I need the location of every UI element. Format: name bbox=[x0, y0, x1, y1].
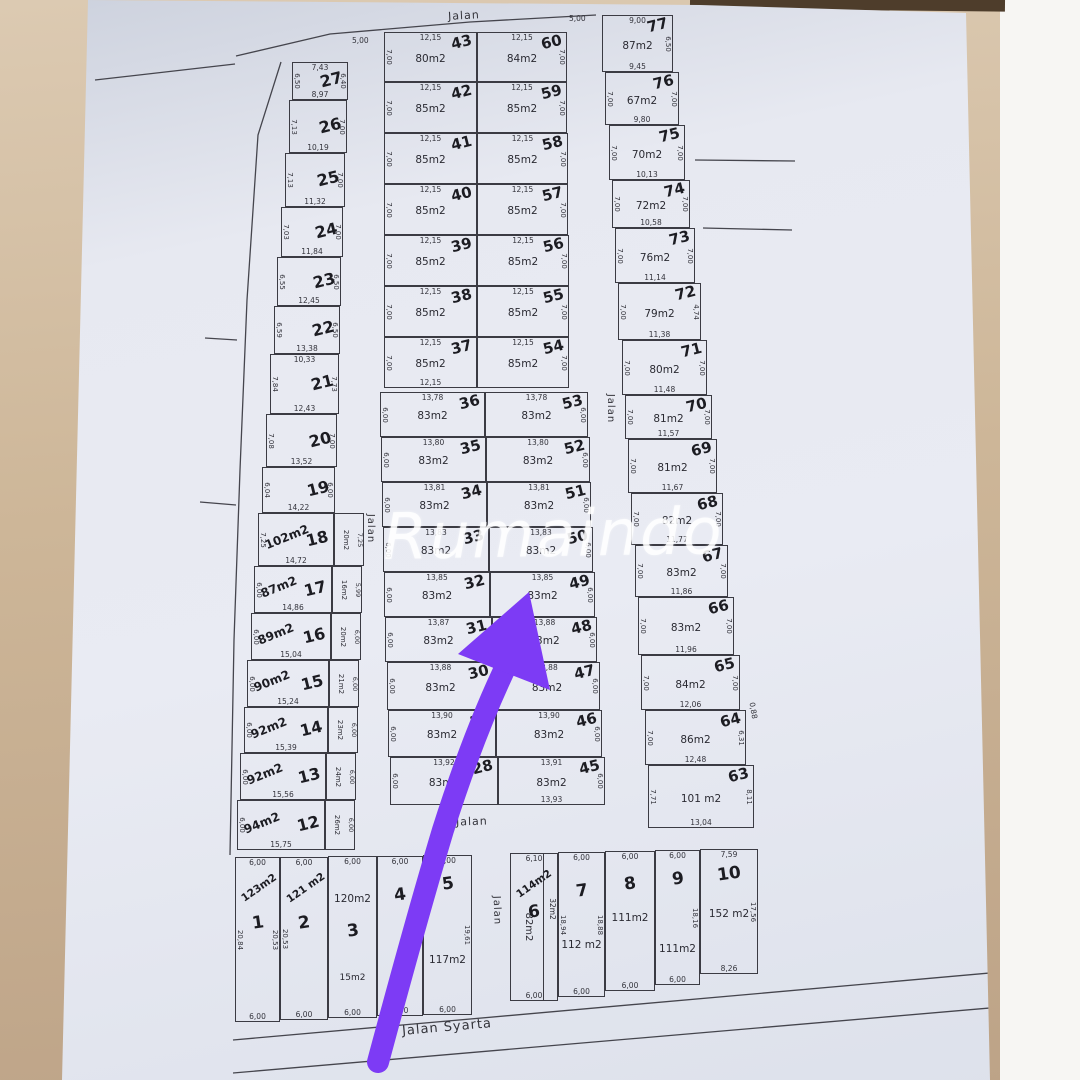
plot-area-handwritten: 92m2 bbox=[249, 714, 289, 741]
plot-area-handwritten: 89m2 bbox=[256, 621, 296, 648]
dim-bottom: 8,26 bbox=[721, 964, 738, 973]
plot-area: 81m2 bbox=[657, 462, 687, 474]
dim-left: 20,84 bbox=[236, 929, 244, 949]
watermark: Rumaindo bbox=[382, 495, 724, 575]
plot-73: 11,147,007,0076m273 bbox=[615, 228, 695, 283]
plot-area: 86m2 bbox=[680, 734, 710, 746]
dim-bottom: 13,52 bbox=[291, 457, 312, 466]
plot-number: 66 bbox=[706, 596, 731, 619]
plot-58: 12,157,0085m258 bbox=[477, 133, 568, 184]
plot-area: 80m2 bbox=[415, 53, 445, 65]
plot-39: 12,157,0085m239 bbox=[384, 235, 477, 286]
plot-22: 13,386,596,5022 bbox=[274, 306, 340, 354]
plot-area: 85m2 bbox=[415, 256, 445, 268]
plot-37: 12,1512,157,0085m237 bbox=[384, 337, 477, 388]
plot-36: 13,786,0083m236 bbox=[380, 392, 485, 437]
photo-of-site-plan: 7,438,976,506,402710,197,137,002611,327,… bbox=[0, 0, 1080, 1080]
plot-18: 14,727,25102m218 bbox=[258, 513, 334, 566]
strip-area: 16m2 bbox=[340, 579, 348, 599]
dim-top: 13,88 bbox=[534, 618, 555, 627]
plot-number: 65 bbox=[712, 654, 737, 677]
dim-bottom: 9,45 bbox=[629, 62, 646, 71]
plot-70: 11,577,007,0081m270 bbox=[625, 395, 712, 439]
plot-area: 85m2 bbox=[507, 103, 537, 115]
plot-77: 9,009,456,5087m277 bbox=[602, 15, 673, 72]
strip-area: 21m2 bbox=[337, 673, 345, 693]
plot-number: 6 bbox=[527, 901, 542, 922]
road-label-2: Jalan bbox=[365, 514, 376, 543]
dim-left: 7,00 bbox=[610, 145, 618, 161]
dim-left: 6,00 bbox=[391, 773, 399, 789]
dim-top: 12,15 bbox=[512, 236, 533, 245]
plot-area: 85m2 bbox=[508, 307, 538, 319]
strip-area: 23m2 bbox=[336, 720, 344, 740]
plot-13: 15,566,0092m213 bbox=[240, 753, 326, 800]
road-label-5: Jalan bbox=[491, 896, 503, 926]
plot-2: 6,006,0020,53121 m22 bbox=[280, 857, 328, 1020]
plot-5: 6,006,0019,61117m25 bbox=[423, 855, 472, 1015]
plot-number: 1 bbox=[250, 912, 265, 933]
dim-left: 7,00 bbox=[606, 91, 614, 107]
dim-bottom: 10,58 bbox=[640, 218, 661, 227]
plot-number: 39 bbox=[449, 234, 474, 257]
plot-number: 63 bbox=[726, 764, 751, 787]
plot-18-strip: 20m27,25 bbox=[334, 513, 364, 566]
plot-number: 75 bbox=[657, 124, 682, 147]
dim-bottom: 10,13 bbox=[636, 170, 657, 179]
dim-top: 12,15 bbox=[420, 83, 441, 92]
plot-area-handwritten: 121 m2 bbox=[285, 871, 328, 906]
dim-top: 12,15 bbox=[511, 83, 532, 92]
dim-right: 17,56 bbox=[749, 901, 757, 921]
plot-number: 28 bbox=[470, 756, 495, 779]
plot-47: 13,886,0083m247 bbox=[494, 662, 600, 710]
strip-area: 20m2 bbox=[339, 626, 347, 646]
dim-top: 9,00 bbox=[629, 16, 646, 25]
plot-area: 85m2 bbox=[415, 358, 445, 370]
plot-59: 12,157,0085m259 bbox=[477, 82, 567, 133]
plot-area: 84m2 bbox=[507, 53, 537, 65]
dim-bottom: 12,45 bbox=[298, 296, 319, 305]
dim-top: 12,15 bbox=[420, 338, 441, 347]
dim-top: 6,00 bbox=[249, 858, 266, 867]
plot-subarea: 15m2 bbox=[340, 973, 366, 983]
dim-top: 10,33 bbox=[294, 355, 315, 364]
plot-63: 13,047,718,11101 m263 bbox=[648, 765, 754, 828]
plot-number: 13 bbox=[296, 763, 322, 787]
plot-21: 10,3312,437,847,7321 bbox=[270, 354, 339, 414]
dim-right: 7,00 bbox=[698, 360, 706, 376]
dim-left: 7,00 bbox=[623, 360, 631, 376]
strip-dim: 6,00 bbox=[351, 676, 359, 690]
plot-area: 117m2 bbox=[429, 954, 466, 966]
dim-right: 7,00 bbox=[676, 145, 684, 161]
plot-number: 10 bbox=[716, 862, 742, 885]
dim-bottom: 13,38 bbox=[296, 344, 317, 353]
plot-area: 85m2 bbox=[415, 205, 445, 217]
plot-area: 83m2 bbox=[422, 590, 452, 602]
plot-number: 14 bbox=[298, 717, 324, 741]
plot-area: 120m2 bbox=[334, 893, 371, 905]
dim-top: 6,00 bbox=[622, 852, 639, 861]
dim-bottom: 11,67 bbox=[662, 483, 683, 492]
plot-3: 6,006,00120m215m23 bbox=[328, 856, 377, 1018]
dim-right: 4,74 bbox=[692, 304, 700, 320]
plot-number: 7 bbox=[574, 880, 589, 901]
dim-left: 6,55 bbox=[278, 274, 286, 290]
plot-number: 4 bbox=[393, 884, 408, 905]
extra-dim-2: 5,00 bbox=[352, 36, 369, 45]
plot-24: 11,847,037,0024 bbox=[281, 207, 343, 257]
dim-left: 7,00 bbox=[385, 355, 393, 371]
plot-number: 38 bbox=[449, 285, 474, 308]
plot-52: 13,806,0083m252 bbox=[486, 437, 590, 482]
plot-72: 11,387,004,7479m272 bbox=[618, 283, 701, 340]
plot-54: 12,157,0085m254 bbox=[477, 337, 569, 388]
dim-bottom: 12,06 bbox=[680, 700, 701, 709]
dim-right: 20,53 bbox=[271, 929, 279, 949]
plot-16-strip: 20m26,00 bbox=[331, 613, 361, 660]
dim-top: 12,15 bbox=[420, 33, 441, 42]
dim-right: 7,00 bbox=[559, 151, 567, 167]
plot-23: 12,456,556,5023 bbox=[277, 257, 341, 306]
dim-right: 7,00 bbox=[558, 49, 566, 65]
dim-top: 13,92 bbox=[433, 758, 454, 767]
plot-area: 83m2 bbox=[429, 777, 459, 789]
plot-48: 13,886,0083m248 bbox=[492, 617, 597, 662]
plot-number: 17 bbox=[302, 576, 328, 600]
dim-top: 6,00 bbox=[439, 856, 456, 865]
dim-top: 12,15 bbox=[420, 134, 441, 143]
dim-top: 12,15 bbox=[512, 134, 533, 143]
plot-10: 7,598,2617,56152 m210 bbox=[700, 849, 758, 974]
dim-bottom: 6,00 bbox=[669, 975, 686, 984]
plot-area: 112 m2 bbox=[561, 939, 601, 951]
dim-top: 13,85 bbox=[532, 573, 553, 582]
plot-number: 77 bbox=[645, 14, 670, 37]
plot-53: 13,786,0083m253 bbox=[485, 392, 588, 437]
plot-14-strip: 23m26,00 bbox=[328, 707, 358, 753]
dim-left: 6,59 bbox=[275, 322, 283, 338]
dim-left: 7,13 bbox=[286, 172, 294, 188]
plot-area: 67m2 bbox=[627, 95, 657, 107]
extra-dim-1: 5,00 bbox=[569, 14, 586, 23]
dim-top: 12,15 bbox=[512, 338, 533, 347]
dim-left: 20,53 bbox=[281, 928, 289, 948]
dim-left: 7,00 bbox=[385, 100, 393, 116]
plot-strip-area: 32m2 bbox=[548, 899, 557, 921]
plot-number: 43 bbox=[449, 31, 474, 54]
dim-bottom: 15,39 bbox=[275, 743, 296, 752]
dim-left: 7,00 bbox=[613, 196, 621, 212]
dim-left: 6,00 bbox=[385, 587, 393, 603]
dim-top: 6,00 bbox=[296, 858, 313, 867]
strip-dim: 6,00 bbox=[353, 629, 361, 643]
plot-55: 12,157,0085m255 bbox=[477, 286, 569, 337]
dim-left: 7,03 bbox=[282, 224, 290, 240]
dim-top: 13,88 bbox=[430, 663, 451, 672]
plot-65: 12,067,007,0084m265 bbox=[641, 655, 740, 710]
dim-bottom: 8,97 bbox=[312, 90, 329, 99]
plot-30: 13,886,0083m230 bbox=[387, 662, 494, 710]
dim-bottom: 11,57 bbox=[658, 429, 679, 438]
plot-64: 12,487,006,3186m264 bbox=[645, 710, 746, 765]
dim-left: 7,00 bbox=[385, 253, 393, 269]
plot-17: 14,866,0087m217 bbox=[254, 566, 332, 613]
plot-number: 71 bbox=[679, 339, 704, 362]
strip-dim: 7,25 bbox=[356, 532, 364, 546]
plot-75: 10,137,007,0070m275 bbox=[609, 125, 685, 180]
dim-bottom: 6,00 bbox=[573, 987, 590, 996]
plot-number: 5 bbox=[440, 873, 455, 894]
plot-area: 83m2 bbox=[536, 777, 566, 789]
dim-left: 6,00 bbox=[382, 452, 390, 468]
plot-area: 101 m2 bbox=[681, 793, 721, 805]
plot-number: 15 bbox=[299, 670, 325, 694]
dim-bottom: 13,04 bbox=[690, 818, 711, 827]
plot-area: 83m2 bbox=[529, 635, 559, 647]
plot-area: 152 m2 bbox=[709, 908, 749, 920]
dim-bottom: 14,22 bbox=[288, 503, 309, 512]
dim-bottom: 11,32 bbox=[304, 197, 325, 206]
dim-bottom: 15,56 bbox=[272, 790, 293, 799]
plot-area: 70m2 bbox=[632, 149, 662, 161]
dim-top: 6,10 bbox=[526, 854, 543, 863]
plot-13-strip: 24m26,00 bbox=[326, 753, 356, 800]
plot-area: 83m2 bbox=[418, 455, 448, 467]
dim-top: 13,88 bbox=[536, 663, 557, 672]
dim-bottom: 11,48 bbox=[654, 385, 675, 394]
plot-area-handwritten: 102m2 bbox=[263, 522, 311, 552]
dim-left: 6,00 bbox=[386, 632, 394, 648]
strip-area: 26m2 bbox=[333, 815, 341, 835]
plot-6: 6,106,0082m2114m232m26 bbox=[510, 853, 558, 1001]
dim-right: 19,61 bbox=[463, 925, 471, 945]
plot-28: 13,926,0083m228 bbox=[390, 757, 498, 805]
plot-32: 13,856,0083m232 bbox=[384, 572, 490, 617]
dim-top: 7,59 bbox=[721, 850, 738, 859]
dim-top: 13,80 bbox=[423, 438, 444, 447]
plot-number: 64 bbox=[718, 709, 743, 732]
dim-right: 7,00 bbox=[731, 675, 739, 691]
plot-area-handwritten: 87m2 bbox=[259, 574, 299, 601]
dim-bottom: 10,19 bbox=[307, 143, 328, 152]
plot-area: 85m2 bbox=[507, 205, 537, 217]
dim-top: 13,81 bbox=[528, 483, 549, 492]
plot-area: 85m2 bbox=[508, 256, 538, 268]
dim-left: 6,00 bbox=[381, 407, 389, 423]
plot-area: 83m2 bbox=[532, 682, 562, 694]
plot-area: 76m2 bbox=[640, 252, 670, 264]
plot-number: 8 bbox=[623, 873, 638, 894]
dim-right: 7,00 bbox=[708, 458, 716, 474]
dim-right: 7,00 bbox=[559, 202, 567, 218]
strip-dim: 6,00 bbox=[350, 723, 358, 737]
dim-bottom: 11,96 bbox=[675, 645, 696, 654]
plot-4: 6,006,004 bbox=[377, 856, 423, 1016]
dim-right: 6,50 bbox=[664, 36, 672, 52]
dim-left: 7,00 bbox=[616, 248, 624, 264]
dim-top: 12,15 bbox=[420, 287, 441, 296]
plot-number: 31 bbox=[464, 616, 489, 639]
dim-top: 13,78 bbox=[526, 393, 547, 402]
plot-74: 10,587,007,0072m274 bbox=[612, 180, 690, 228]
dim-top: 13,91 bbox=[541, 758, 562, 767]
plot-57: 12,157,0085m257 bbox=[477, 184, 568, 235]
dim-left: 7,00 bbox=[385, 202, 393, 218]
plot-42: 12,157,0085m242 bbox=[384, 82, 477, 133]
road-label-3: Jalan bbox=[605, 394, 616, 423]
dim-left: 7,00 bbox=[385, 304, 393, 320]
dim-top: 13,87 bbox=[428, 618, 449, 627]
plot-area: 83m2 bbox=[521, 410, 551, 422]
plot-area: 80m2 bbox=[649, 364, 679, 376]
plot-area: 83m2 bbox=[423, 635, 453, 647]
dim-right: 18,88 bbox=[596, 914, 604, 934]
plot-area-handwritten: 114m2 bbox=[514, 868, 554, 901]
road-label-4: Jalan bbox=[456, 814, 488, 828]
strip-area: 24m2 bbox=[334, 766, 342, 786]
plot-71: 11,487,007,0080m271 bbox=[622, 340, 707, 395]
dim-bottom: 6,00 bbox=[344, 1008, 361, 1017]
plot-area-handwritten: 94m2 bbox=[242, 809, 282, 836]
dim-top: 6,00 bbox=[573, 853, 590, 862]
dim-right: 7,00 bbox=[681, 196, 689, 212]
plot-number: 32 bbox=[462, 571, 487, 594]
dim-bottom: 14,72 bbox=[285, 556, 306, 565]
plot-area: 83m2 bbox=[417, 410, 447, 422]
plot-area: 85m2 bbox=[508, 358, 538, 370]
plot-area-handwritten: 123m2 bbox=[239, 872, 279, 905]
plot-area: 85m2 bbox=[415, 307, 445, 319]
plot-31: 13,876,0083m231 bbox=[385, 617, 492, 662]
plot-35: 13,806,0083m235 bbox=[381, 437, 486, 482]
plot-number: 41 bbox=[449, 132, 474, 155]
plot-1: 6,006,0020,8420,53123m21 bbox=[235, 857, 280, 1022]
plot-38: 12,157,0085m238 bbox=[384, 286, 477, 337]
plot-number: 42 bbox=[449, 81, 474, 104]
strip-dim: 6,00 bbox=[348, 769, 356, 783]
dim-top: 12,15 bbox=[512, 287, 533, 296]
dim-right: 7,00 bbox=[725, 618, 733, 634]
plot-area: 79m2 bbox=[644, 308, 674, 320]
plot-area: 83m2 bbox=[527, 590, 557, 602]
dim-right: 6,00 bbox=[596, 773, 604, 789]
dim-top: 6,00 bbox=[392, 857, 409, 866]
plot-15-strip: 21m26,00 bbox=[329, 660, 359, 707]
dim-top: 13,90 bbox=[431, 711, 452, 720]
plot-area: 83m2 bbox=[534, 729, 564, 741]
dim-left: 7,84 bbox=[271, 376, 279, 392]
plot-area: 83m2 bbox=[425, 682, 455, 694]
strip-dim: 6,00 bbox=[347, 818, 355, 832]
dim-bottom: 6,00 bbox=[439, 1005, 456, 1014]
dim-top: 12,15 bbox=[420, 185, 441, 194]
road-label-6: Jalan Syarta bbox=[402, 1016, 493, 1039]
dim-top: 13,90 bbox=[538, 711, 559, 720]
plot-15: 15,246,0090m215 bbox=[247, 660, 329, 707]
plot-area: 83m2 bbox=[523, 455, 553, 467]
plot-number: 36 bbox=[457, 391, 482, 414]
dim-bottom: 12,15 bbox=[420, 378, 441, 387]
dim-bottom: 11,86 bbox=[671, 587, 692, 596]
dim-bottom: 15,24 bbox=[277, 697, 298, 706]
dim-top: 12,15 bbox=[420, 236, 441, 245]
paper: 7,438,976,506,402710,197,137,002611,327,… bbox=[0, 0, 1080, 1080]
plot-area: 85m2 bbox=[415, 154, 445, 166]
dim-right: 8,11 bbox=[745, 789, 753, 805]
dim-left: 7,00 bbox=[646, 730, 654, 746]
dim-top: 6,00 bbox=[669, 851, 686, 860]
dim-bottom: 11,38 bbox=[649, 330, 670, 339]
plot-number: 37 bbox=[449, 336, 474, 359]
plot-number: 12 bbox=[295, 812, 321, 836]
dim-bottom: 11,84 bbox=[301, 247, 322, 256]
plot-area: 85m2 bbox=[415, 103, 445, 115]
dim-right: 18,16 bbox=[691, 907, 699, 927]
right-white-strip bbox=[1000, 0, 1080, 1080]
dim-left: 7,00 bbox=[639, 618, 647, 634]
plot-number: 16 bbox=[301, 623, 327, 647]
plot-area: 111m2 bbox=[612, 912, 649, 924]
plot-number: 2 bbox=[297, 912, 312, 933]
plot-area-handwritten: 90m2 bbox=[252, 668, 292, 695]
plot-strip-divider bbox=[543, 854, 544, 1000]
plot-area-handwritten: 92m2 bbox=[245, 761, 285, 788]
dim-left: 7,71 bbox=[649, 789, 657, 805]
plot-41: 12,157,0085m241 bbox=[384, 133, 477, 184]
dim-bottom: 6,00 bbox=[622, 981, 639, 990]
dim-bottom: 11,14 bbox=[644, 273, 665, 282]
dim-bottom: 6,00 bbox=[392, 1006, 409, 1015]
dim-left: 7,00 bbox=[626, 409, 634, 425]
plot-area: 81m2 bbox=[653, 413, 683, 425]
plot-16: 15,046,0089m216 bbox=[251, 613, 331, 660]
dim-left: 18,94 bbox=[559, 914, 567, 934]
dim-top: 13,81 bbox=[424, 483, 445, 492]
plot-40: 12,157,0085m240 bbox=[384, 184, 477, 235]
plot-76: 9,807,007,0067m276 bbox=[605, 72, 679, 125]
plot-number: 40 bbox=[449, 183, 474, 206]
dim-right: 6,00 bbox=[591, 678, 599, 694]
plot-43: 12,157,0080m243 bbox=[384, 32, 477, 82]
dim-bottom: 6,00 bbox=[296, 1010, 313, 1019]
plot-8: 6,006,00111m28 bbox=[605, 851, 655, 991]
plot-46: 13,906,0083m246 bbox=[496, 710, 602, 757]
plot-69: 11,677,007,0081m269 bbox=[628, 439, 717, 493]
extra-dim-3: 0,88 bbox=[747, 701, 759, 719]
plot-area: 85m2 bbox=[507, 154, 537, 166]
plot-area: 84m2 bbox=[675, 679, 705, 691]
dim-bottom: 12,43 bbox=[294, 404, 315, 413]
dim-right: 7,00 bbox=[686, 248, 694, 264]
dim-top: 13,78 bbox=[422, 393, 443, 402]
plot-area: 87m2 bbox=[622, 40, 652, 52]
plot-12-strip: 26m26,00 bbox=[325, 800, 355, 850]
dim-top: 12,15 bbox=[511, 33, 532, 42]
dim-left: 6,50 bbox=[293, 73, 301, 89]
plot-area: 111m2 bbox=[659, 943, 696, 955]
dim-right: 7,00 bbox=[560, 304, 568, 320]
plot-17-strip: 16m25,99 bbox=[332, 566, 362, 613]
plot-area: 83m2 bbox=[671, 622, 701, 634]
plot-25: 11,327,137,0025 bbox=[285, 153, 345, 207]
plot-49: 13,856,0083m249 bbox=[490, 572, 595, 617]
dim-top: 13,80 bbox=[527, 438, 548, 447]
dim-top: 12,15 bbox=[512, 185, 533, 194]
dim-left: 7,08 bbox=[267, 433, 275, 449]
road-label-1: Jalan bbox=[448, 8, 480, 23]
